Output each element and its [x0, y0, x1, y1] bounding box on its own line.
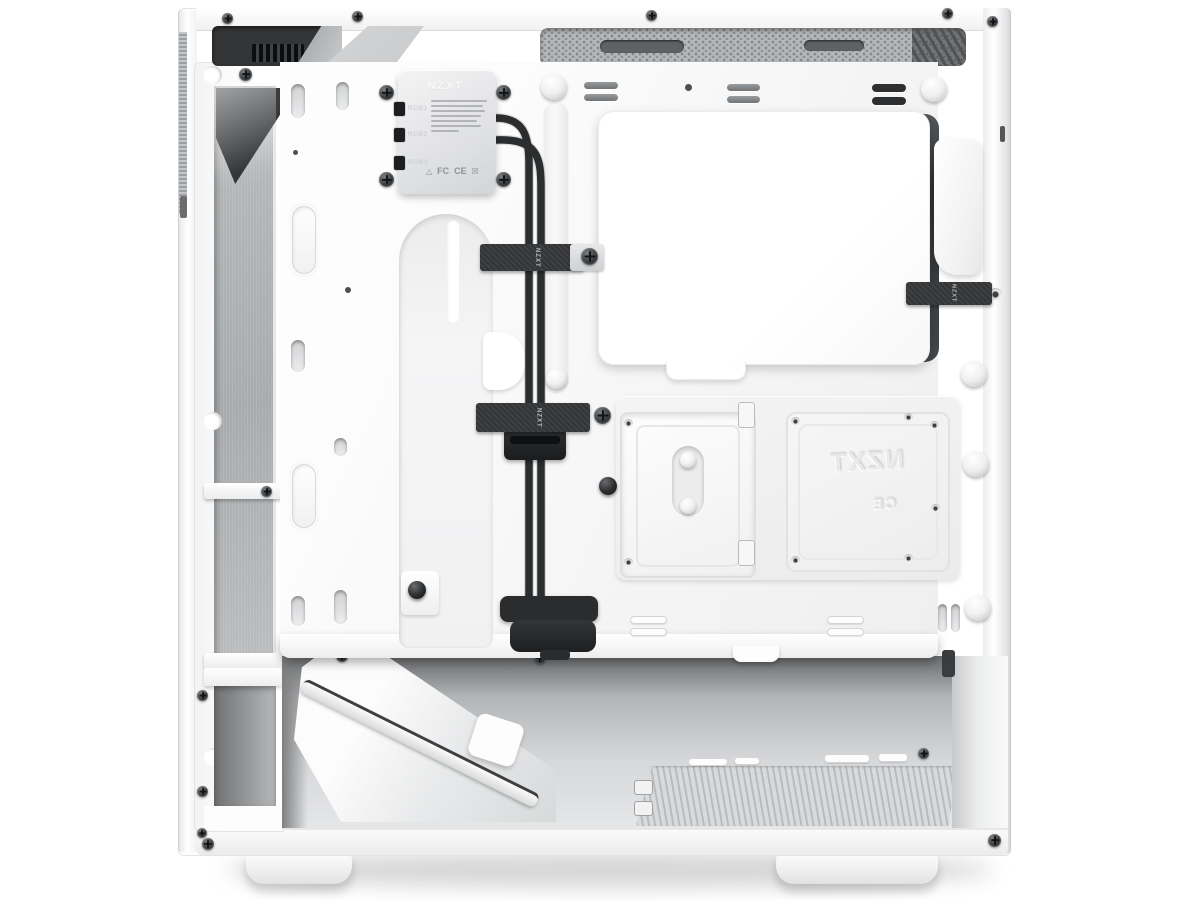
rear-slot-pair-1 — [938, 604, 947, 632]
fineprint-line — [431, 130, 459, 132]
front-bottom-base — [204, 806, 282, 830]
rgb-port-3 — [394, 156, 405, 170]
tray-hole-dot-1 — [293, 150, 298, 155]
rear-wall-notch — [942, 650, 955, 677]
strap-label: NZXT — [951, 284, 957, 302]
front-bottom-bay — [214, 686, 276, 806]
bottom-rail-screw-right — [988, 834, 1001, 847]
ssd-clip-top — [738, 402, 755, 428]
tray-hole-9 — [904, 554, 913, 563]
front-column-screw-top — [239, 68, 252, 81]
fineprint-line — [431, 110, 485, 112]
psu-connector-lower — [510, 620, 596, 652]
tray-dot-top — [685, 84, 692, 91]
strap-screw-upper — [581, 248, 598, 265]
rear-column-screw — [987, 16, 998, 27]
tray-slot-b2 — [334, 438, 347, 456]
front-lower-screw-3 — [197, 828, 207, 838]
fineprint-line — [431, 120, 477, 122]
cable-grommet-upper — [289, 203, 319, 277]
shroud-vent-2b — [827, 628, 864, 636]
tray-hole-dot-2 — [345, 287, 351, 293]
cable-grommet-lower — [289, 461, 319, 531]
ce-mark: CE — [454, 166, 467, 176]
front-edge-latch — [180, 196, 187, 218]
rear-vent-notch — [1000, 126, 1005, 142]
channel-thumbscrew — [408, 581, 426, 599]
velcro-strap-rear: NZXT — [906, 282, 992, 305]
mesh-handle-slot-2 — [804, 40, 864, 51]
controller-screw-bl — [379, 172, 394, 187]
tray-slot-a3 — [291, 596, 305, 626]
rear-bracket — [934, 139, 982, 275]
thumbscrew-top-right — [921, 76, 947, 102]
product-photo-pc-case: NZXT CE NZXT RGB1 RGB2 RGB3 — [0, 0, 1200, 900]
tray-vent-2a — [727, 84, 760, 91]
fcc-mark: FC — [437, 166, 449, 176]
controller-screw-tr — [496, 85, 511, 100]
tray-slot-a2 — [291, 340, 305, 372]
controller-fineprint — [431, 100, 489, 135]
bottom-rail — [196, 828, 1008, 855]
floor-slot-1 — [688, 758, 728, 766]
psu-rail-clip-1 — [634, 780, 653, 795]
front-lower-screw-2 — [197, 786, 208, 797]
tray-vent-1b — [584, 94, 618, 101]
bottom-rail-screw-left — [202, 838, 214, 850]
rgb-controller: NZXT RGB1 RGB2 RGB3 △ FC CE ☒ — [398, 70, 496, 194]
cable-notch-top — [204, 66, 222, 84]
fan-rail-crossbar-upper — [204, 483, 284, 499]
strap-screw-lower — [594, 407, 611, 424]
thumbscrew-right-3 — [965, 595, 991, 621]
floor-slot-3 — [824, 754, 870, 763]
tray-slot-b1 — [336, 82, 349, 110]
psu-vent-floor — [636, 766, 958, 826]
tray-vent-2b — [727, 96, 760, 103]
ssd-oval-screw-bottom — [680, 498, 696, 514]
psu-connector-tail — [540, 650, 570, 660]
front-bottom-shelf — [204, 668, 282, 686]
top-rail-screw-2 — [352, 11, 363, 22]
psu-connector-upper — [500, 596, 598, 622]
velcro-strap-upper: NZXT — [480, 244, 584, 271]
shroud-vent-1b — [630, 628, 667, 636]
controller-cert-row: △ FC CE ☒ — [426, 166, 490, 176]
tray-vent-3b — [872, 97, 906, 105]
fineprint-line — [431, 100, 487, 102]
rgb-port-label-2: RGB2 — [408, 131, 428, 138]
weee-bin-icon: ☒ — [472, 167, 479, 176]
chamber-rear-screw — [918, 748, 929, 759]
tray-hole-5 — [791, 417, 800, 426]
psu-rail-clip-2 — [634, 801, 653, 816]
floor-slot-4 — [878, 753, 908, 762]
crossbar-screw — [261, 486, 272, 497]
mesh-dark-end — [912, 28, 966, 66]
shroud-vent-1a — [630, 616, 667, 624]
strap-label: NZXT — [534, 248, 540, 268]
fineprint-line — [431, 105, 483, 107]
channel-slot — [447, 220, 460, 324]
tray-slot-a1 — [291, 84, 305, 118]
rgb-port-1 — [394, 102, 405, 116]
thumbscrew-top-left — [541, 74, 567, 100]
chamber-rear-wall — [952, 656, 1008, 828]
sata-connector — [504, 428, 566, 460]
strap-label: NZXT — [535, 408, 541, 428]
ssd-oval-screw-top — [680, 452, 696, 468]
controller-brand: NZXT — [428, 81, 488, 92]
velcro-strap-lower: NZXT — [476, 403, 590, 432]
cpu-cutout-panel — [598, 111, 930, 365]
floor-slot-2 — [734, 757, 760, 765]
top-rail-screw-4 — [942, 8, 953, 19]
fan-rail-crossbar-lower — [204, 653, 284, 669]
rgb-port-2 — [394, 128, 405, 142]
tray-vent-3a — [872, 84, 906, 92]
tray-slot-b3 — [334, 590, 347, 624]
top-rail-screw-3 — [646, 10, 657, 21]
thumbscrew-right-1 — [961, 361, 987, 387]
rgb-port-label-3: RGB3 — [408, 159, 428, 166]
fineprint-line — [431, 115, 481, 117]
tray-hole-8 — [791, 556, 800, 565]
tray-mid-tab — [733, 646, 779, 662]
rear-slot-pair-2 — [951, 604, 960, 632]
cpu-panel-tab — [666, 361, 746, 380]
ssd-hole-3 — [624, 558, 633, 567]
front-mesh-edge — [179, 32, 187, 214]
ssd-hole-1 — [624, 419, 633, 428]
embossed-brand-mirrored: NZXT — [809, 443, 922, 480]
cable-notch-middle — [204, 412, 222, 430]
front-opening-highlight — [214, 86, 276, 236]
sata-connector-key — [510, 436, 560, 444]
recycle-icon: △ — [426, 167, 432, 176]
front-io-connectors — [252, 44, 304, 62]
fineprint-line — [431, 125, 481, 127]
thumbscrew-right-2 — [963, 451, 989, 477]
front-lower-screw-1 — [197, 690, 208, 701]
shroud-vent-2a — [827, 616, 864, 624]
rgb-port-label-1: RGB1 — [408, 105, 428, 112]
embossed-ce-mark-mirrored: CE — [862, 495, 897, 514]
tray-hole-7 — [930, 421, 939, 430]
ssd-clip-bottom — [738, 540, 755, 566]
controller-screw-tl — [379, 85, 394, 100]
tray-hole-6 — [904, 413, 913, 422]
tray-vent-1a — [584, 82, 618, 89]
tray-hole-10 — [931, 504, 940, 513]
mesh-handle-slot-1 — [600, 40, 684, 53]
top-rail-screw-1 — [222, 13, 233, 24]
controller-screw-br — [496, 172, 511, 187]
thumbscrew-mid-left — [546, 368, 567, 389]
